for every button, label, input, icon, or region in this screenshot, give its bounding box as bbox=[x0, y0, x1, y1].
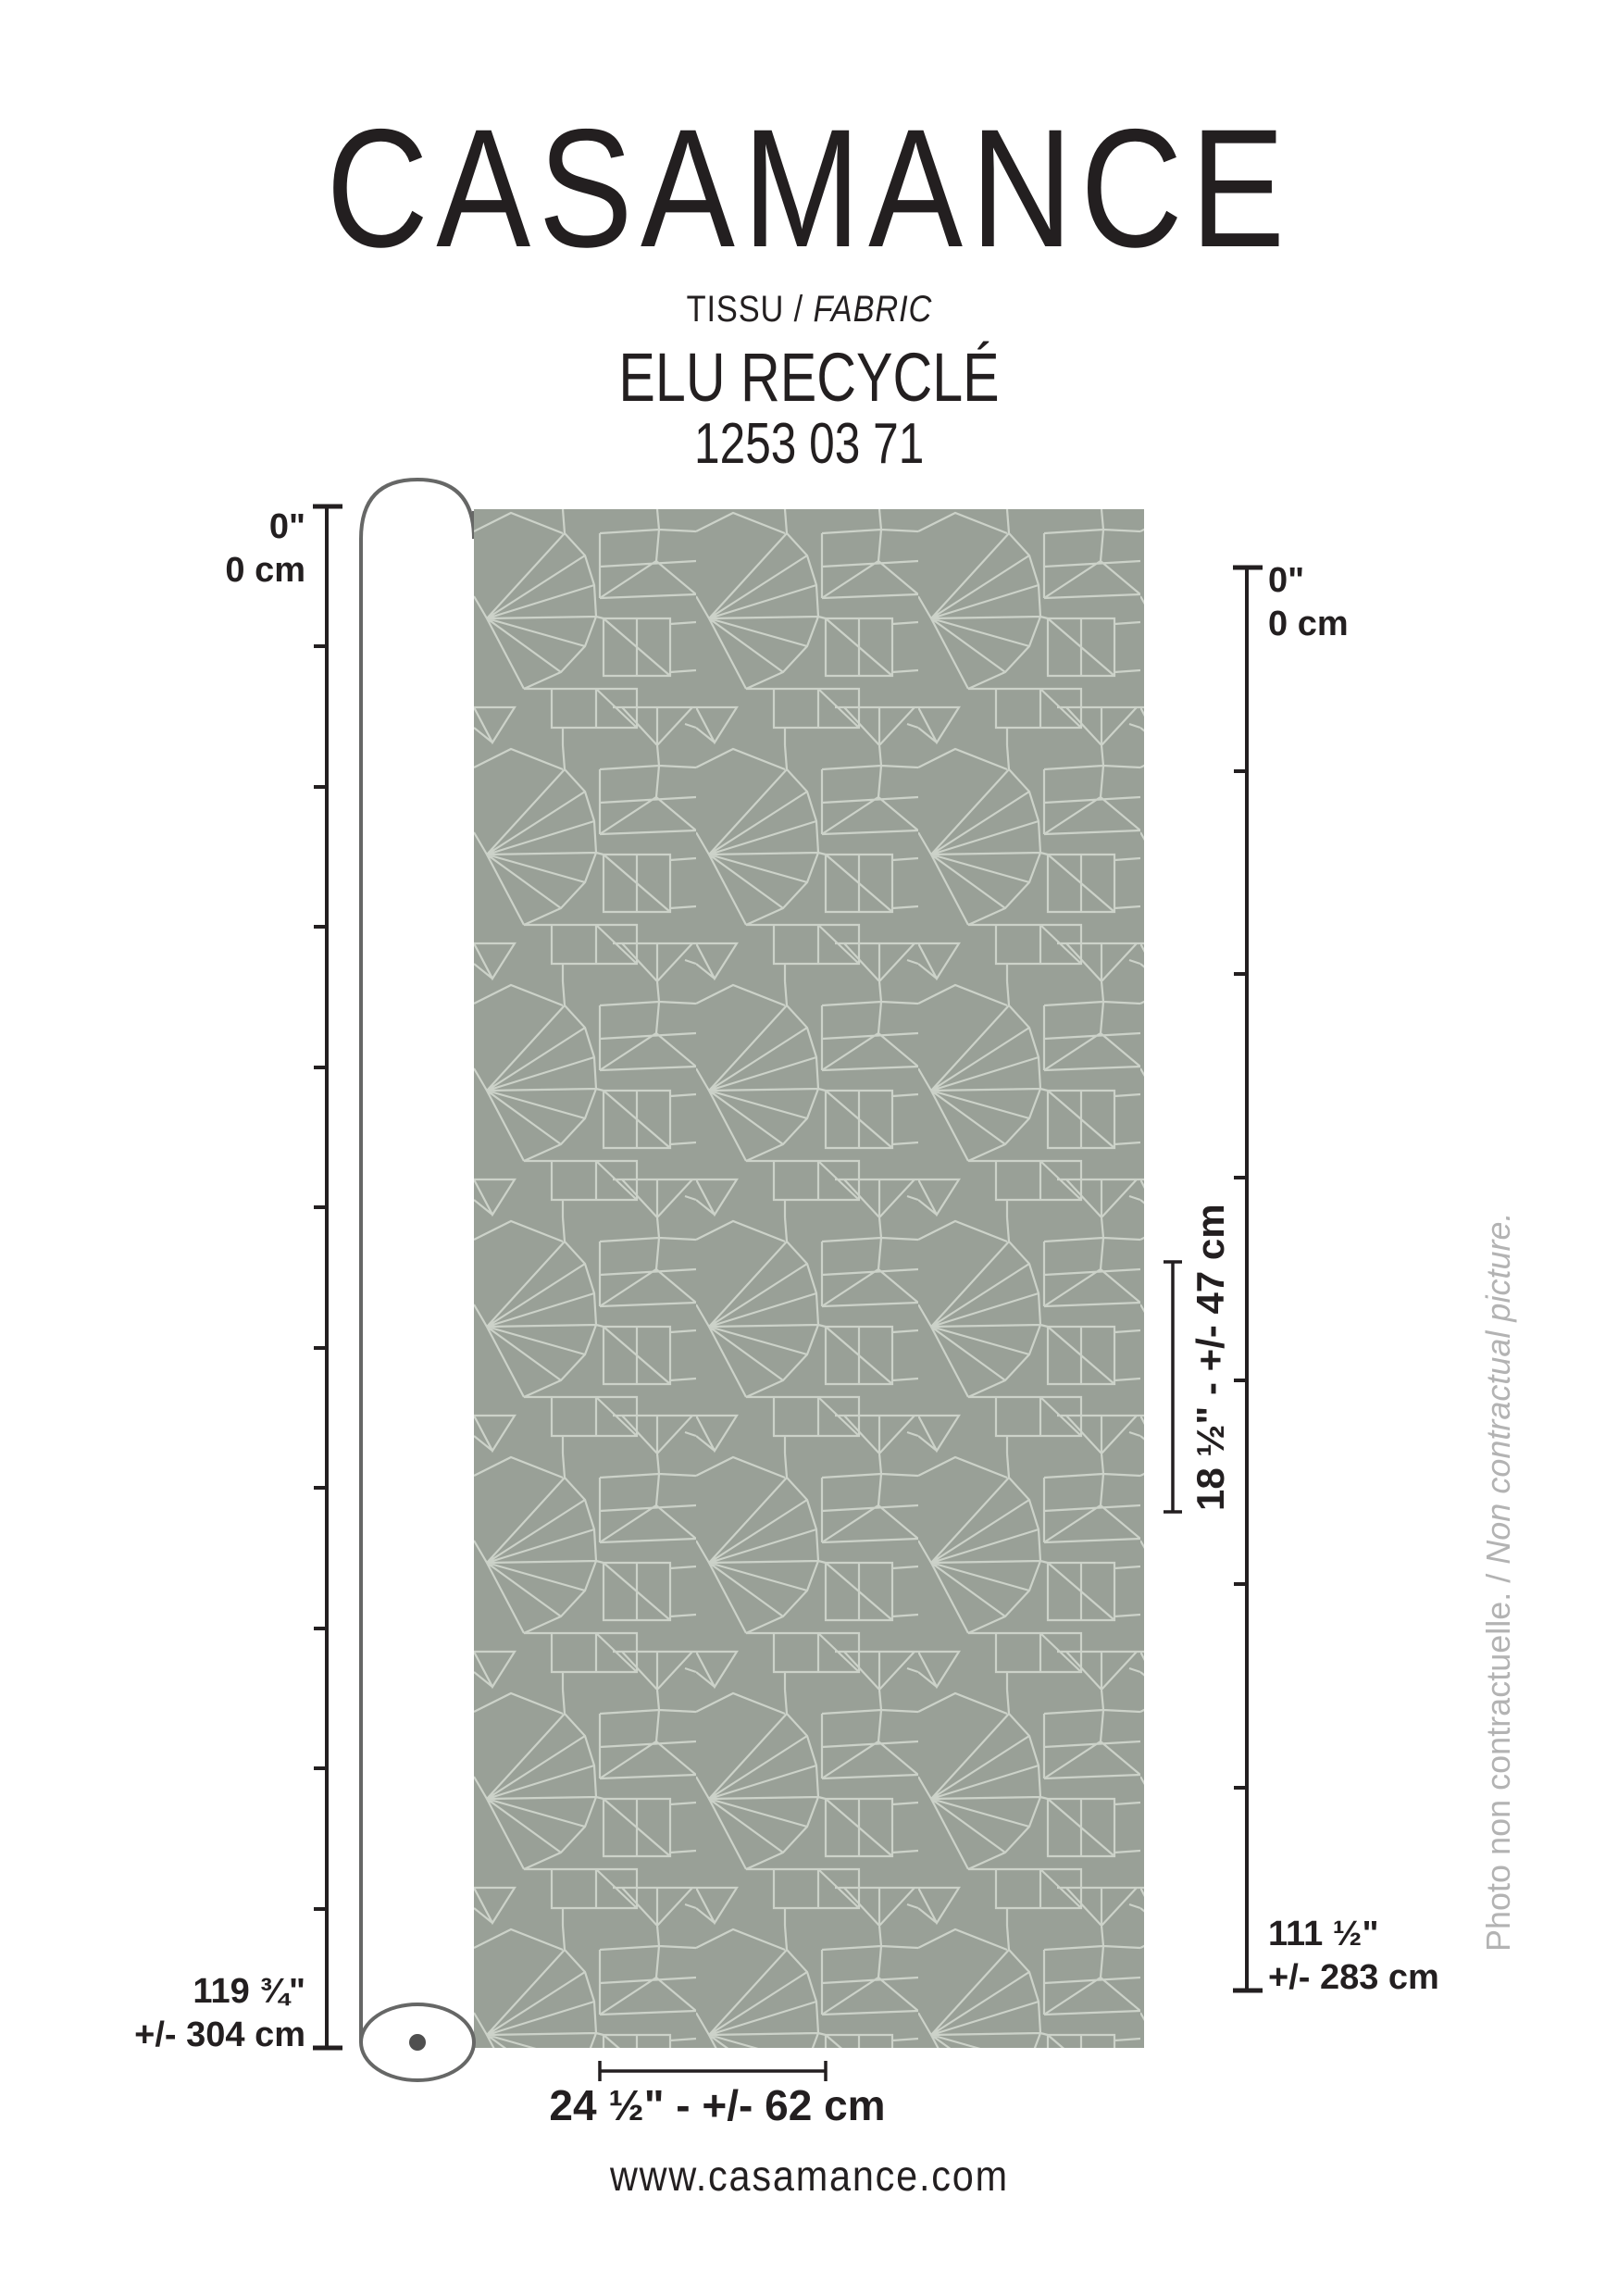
left-ruler-zero-label: 0" 0 cm bbox=[37, 505, 305, 593]
roll-core-dot bbox=[409, 2034, 426, 2051]
category-fr: TISSU bbox=[686, 289, 784, 330]
fabric-spec-sheet: { "brand": "CASAMANCE", "header": { "cat… bbox=[0, 0, 1618, 2296]
roll-end-cap bbox=[361, 2004, 474, 2080]
disclaimer-en: Non contractual picture. bbox=[1479, 1213, 1517, 1565]
brand-logo: CASAMANCE bbox=[0, 104, 1618, 272]
left-ruler bbox=[313, 506, 342, 2048]
disclaimer-note: Photo non contractuelle. / Non contractu… bbox=[1481, 1267, 1518, 1952]
right-ruler-max-label: 111 ½" +/- 283 cm bbox=[1268, 1913, 1564, 2000]
left-ruler-max-inches: 119 ¾" bbox=[37, 1970, 305, 2014]
disclaimer-fr: Photo non contractuelle. bbox=[1479, 1592, 1517, 1952]
product-code: 1253 03 71 bbox=[0, 415, 1618, 474]
fabric-swatch bbox=[474, 509, 1144, 2048]
right-ruler-max-inches: 111 ½" bbox=[1268, 1913, 1564, 1956]
right-ruler-zero-label: 0" 0 cm bbox=[1268, 559, 1564, 646]
right-ruler-zero-cm: 0 cm bbox=[1268, 603, 1564, 646]
width-bracket bbox=[600, 2061, 826, 2081]
category-line: TISSU / FABRIC bbox=[0, 289, 1618, 330]
left-ruler-zero-cm: 0 cm bbox=[37, 549, 305, 593]
left-ruler-max-cm: +/- 304 cm bbox=[37, 2014, 305, 2057]
disclaimer-separator: / bbox=[1479, 1565, 1517, 1592]
right-ruler-max-cm: +/- 283 cm bbox=[1268, 1956, 1564, 2000]
left-ruler-zero-inches: 0" bbox=[37, 505, 305, 549]
right-ruler-zero-inches: 0" bbox=[1268, 559, 1564, 603]
product-name: ELU RECYCLÉ bbox=[0, 341, 1618, 415]
right-ruler-ticks bbox=[1234, 771, 1247, 1788]
repeat-measurement-label: 18 ½" - +/- 47 cm bbox=[1190, 1196, 1231, 1511]
left-ruler-ticks bbox=[314, 646, 327, 1909]
website-url: www.casamance.com bbox=[0, 2153, 1618, 2198]
width-measurement-label: 24 ½" - +/- 62 cm bbox=[504, 2083, 930, 2128]
repeat-bracket bbox=[1164, 1262, 1182, 1512]
category-separator: / bbox=[784, 289, 813, 330]
fabric-roll bbox=[361, 480, 474, 2042]
roll-body bbox=[361, 480, 474, 2042]
brand-logo-text: CASAMANCE bbox=[326, 104, 1292, 272]
right-ruler bbox=[1233, 568, 1263, 1990]
left-ruler-max-label: 119 ¾" +/- 304 cm bbox=[37, 1970, 305, 2057]
category-en: FABRIC bbox=[813, 289, 932, 330]
